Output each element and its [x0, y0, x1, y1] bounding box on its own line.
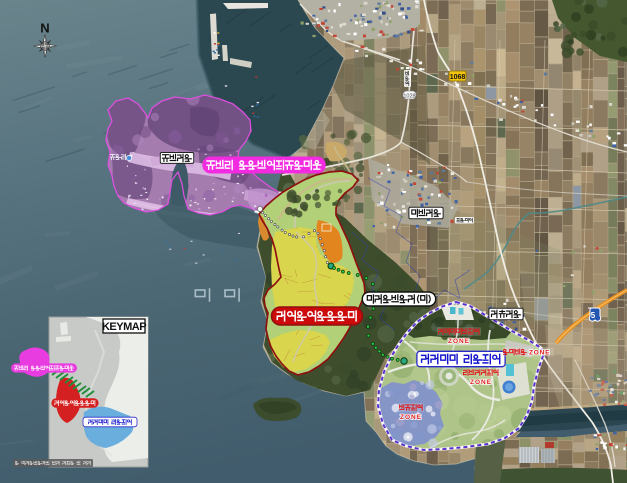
svg-text:KEYMAP: KEYMAP [102, 321, 146, 333]
svg-text:ZONE: ZONE [400, 414, 422, 421]
svg-text:5: 5 [591, 311, 596, 320]
svg-text:ZONE: ZONE [448, 338, 470, 345]
svg-text:1028: 1028 [403, 93, 415, 99]
svg-text:ZONE: ZONE [470, 379, 492, 386]
svg-text:N: N [40, 21, 49, 36]
svg-text:ZONE: ZONE [529, 350, 550, 357]
svg-text:1068: 1068 [450, 74, 466, 81]
